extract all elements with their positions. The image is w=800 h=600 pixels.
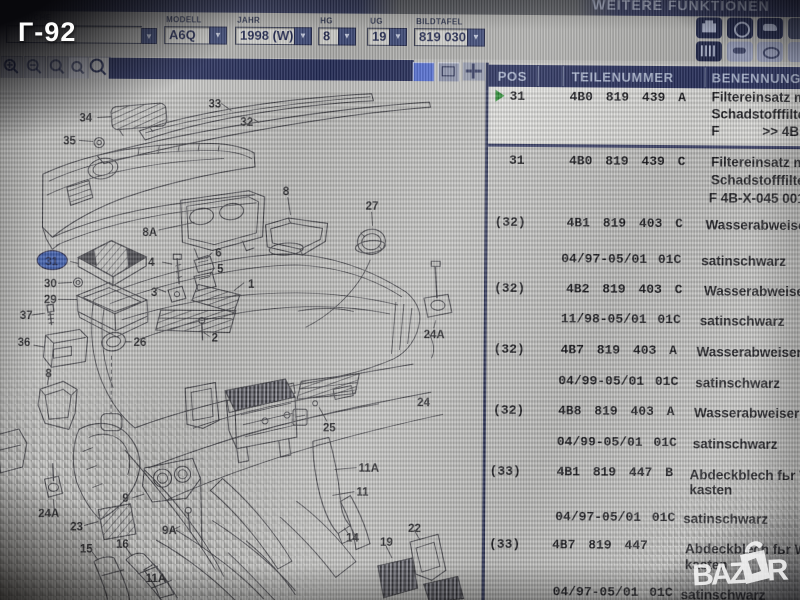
svg-text:R: R [766, 554, 790, 588]
svg-text:BAZ: BAZ [691, 557, 748, 588]
